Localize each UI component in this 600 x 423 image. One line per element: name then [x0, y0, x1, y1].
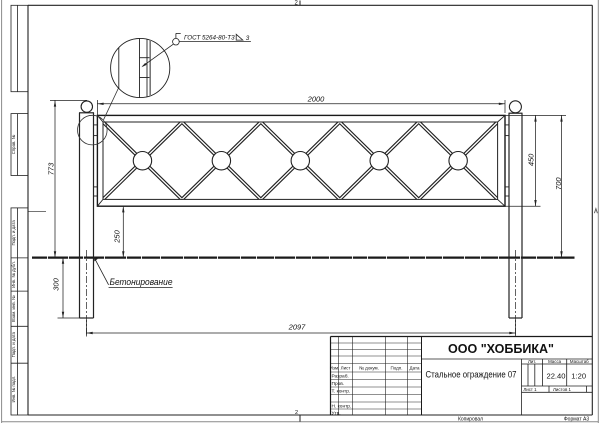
- svg-text:250: 250: [112, 229, 121, 243]
- svg-text:3: 3: [246, 35, 250, 42]
- svg-text:22.40: 22.40: [546, 371, 565, 380]
- svg-text:ГОСТ 5264-80-Т3: ГОСТ 5264-80-Т3: [184, 35, 235, 42]
- svg-text:Разраб.: Разраб.: [332, 374, 349, 380]
- svg-text:Бетонирование: Бетонирование: [110, 277, 173, 287]
- svg-text:Т. контр.: Т. контр.: [332, 389, 351, 395]
- svg-text:450: 450: [526, 153, 535, 166]
- svg-text:Стальное ограждение 07: Стальное ограждение 07: [426, 370, 517, 381]
- svg-text:2: 2: [295, 410, 298, 416]
- svg-text:№ докум.: № докум.: [359, 366, 379, 371]
- svg-text:773: 773: [46, 162, 55, 175]
- svg-text:Копировал: Копировал: [458, 416, 483, 422]
- svg-text:Масштаб: Масштаб: [570, 359, 589, 364]
- svg-text:Масса: Масса: [548, 359, 562, 364]
- svg-text:Справ. №: Справ. №: [11, 134, 16, 154]
- svg-text:Дата: Дата: [410, 366, 420, 371]
- svg-text:2000: 2000: [307, 94, 326, 103]
- svg-text:Лит.: Лит.: [528, 359, 536, 364]
- svg-text:Лист 1: Лист 1: [523, 387, 537, 392]
- svg-text:Пров.: Пров.: [332, 381, 345, 387]
- svg-text:Формат А3: Формат А3: [564, 416, 589, 422]
- svg-text:Подп.: Подп.: [391, 366, 403, 371]
- svg-text:Инв. № дубл.: Инв. № дубл.: [11, 261, 16, 288]
- svg-text:2097: 2097: [288, 323, 307, 332]
- svg-text:Инв. № подл.: Инв. № подл.: [11, 376, 16, 403]
- svg-text:Утв.: Утв.: [332, 410, 341, 416]
- svg-text:ООО "ХОББИКА": ООО "ХОББИКА": [448, 341, 554, 356]
- svg-text:1:20: 1:20: [571, 371, 586, 380]
- svg-text:Подп. и дата: Подп. и дата: [11, 220, 16, 246]
- svg-text:300: 300: [52, 277, 61, 290]
- svg-text:Н. контр.: Н. контр.: [332, 403, 352, 409]
- svg-text:700: 700: [554, 177, 563, 190]
- svg-text:Взам. инв. №: Взам. инв. №: [11, 295, 16, 322]
- svg-text:Изм.: Изм.: [330, 366, 340, 371]
- svg-text:Листов 1: Листов 1: [553, 387, 571, 392]
- svg-text:Подп. и дата: Подп. и дата: [11, 331, 16, 357]
- svg-text:Лист: Лист: [341, 366, 351, 371]
